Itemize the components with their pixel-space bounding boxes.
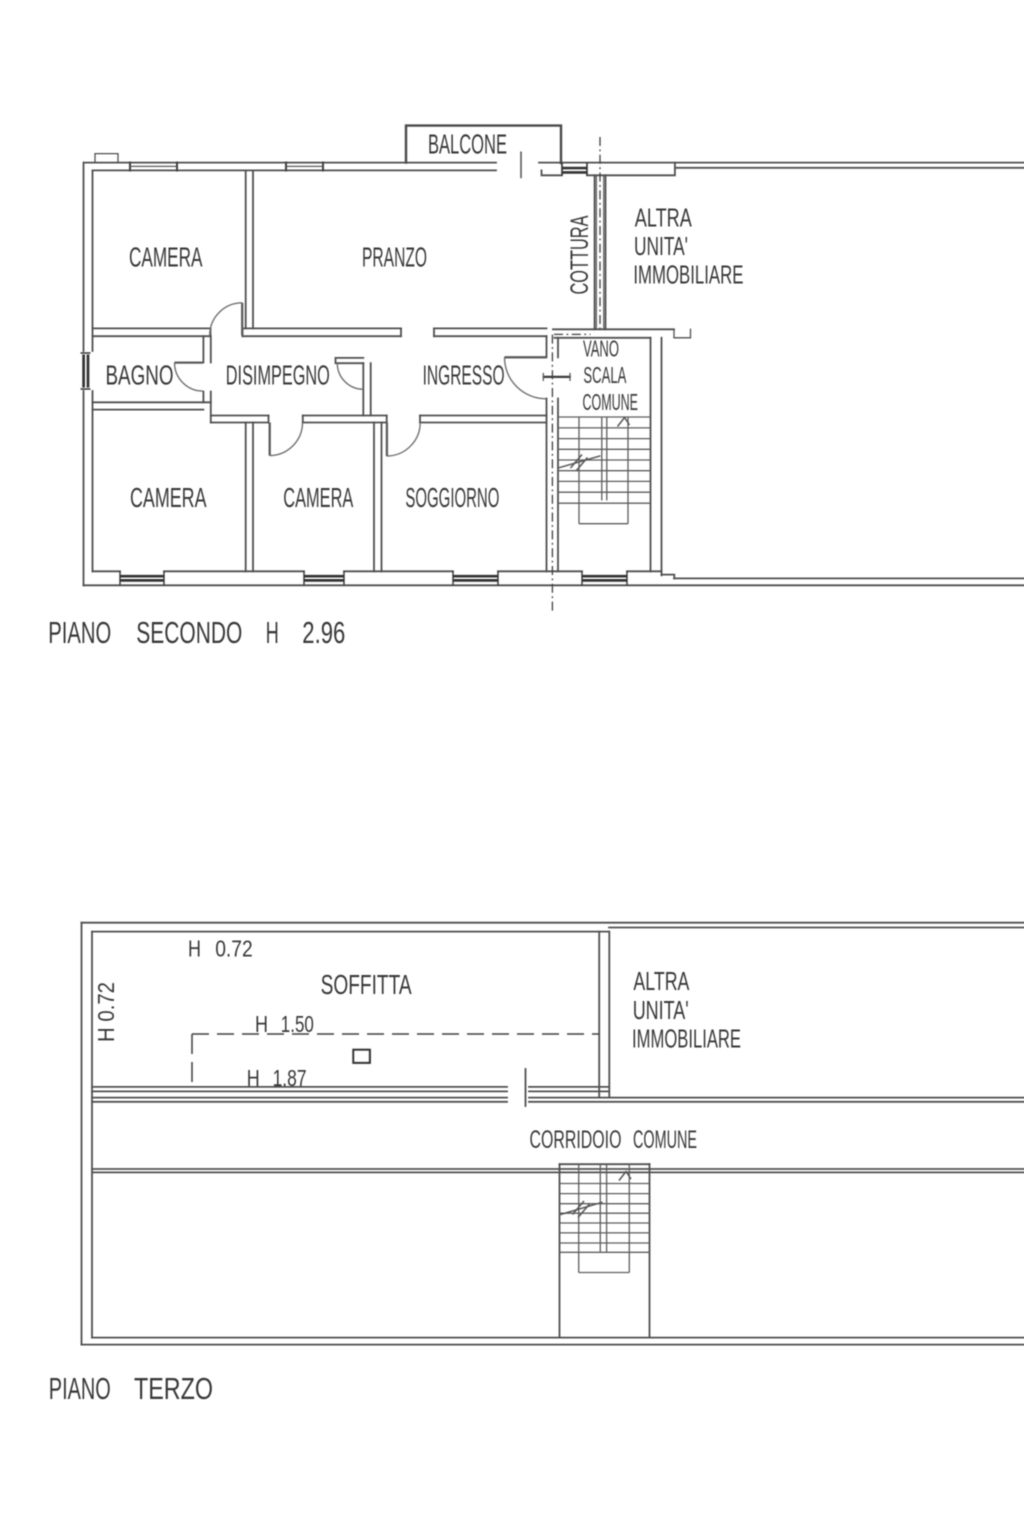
svg-text:1.50: 1.50 bbox=[281, 1011, 314, 1037]
svg-text:PIANO: PIANO bbox=[48, 615, 111, 650]
svg-text:IMMOBILIARE: IMMOBILIARE bbox=[633, 260, 743, 290]
svg-text:BALCONE: BALCONE bbox=[428, 129, 507, 160]
svg-text:CAMERA: CAMERA bbox=[130, 482, 207, 513]
svg-text:INGRESSO: INGRESSO bbox=[423, 360, 505, 391]
svg-text:H: H bbox=[247, 1065, 260, 1091]
svg-text:VANO: VANO bbox=[583, 336, 619, 362]
svg-text:ALTRA: ALTRA bbox=[635, 203, 692, 233]
svg-text:BAGNO: BAGNO bbox=[106, 360, 174, 391]
svg-text:TERZO: TERZO bbox=[134, 1371, 213, 1406]
svg-text:H 0.72: H 0.72 bbox=[93, 982, 119, 1042]
svg-text:COMUNE: COMUNE bbox=[633, 1126, 697, 1154]
svg-text:CORRIDOIO: CORRIDOIO bbox=[530, 1126, 622, 1154]
svg-text:SECONDO: SECONDO bbox=[136, 615, 242, 650]
svg-text:COTTURA: COTTURA bbox=[566, 215, 594, 294]
svg-text:DISIMPEGNO: DISIMPEGNO bbox=[226, 360, 330, 391]
svg-text:UNITA': UNITA' bbox=[634, 231, 688, 261]
svg-text:0.72: 0.72 bbox=[215, 936, 253, 962]
svg-text:H: H bbox=[188, 936, 201, 962]
svg-text:COMUNE: COMUNE bbox=[583, 389, 639, 415]
svg-text:CAMERA: CAMERA bbox=[283, 482, 353, 513]
svg-text:UNITA': UNITA' bbox=[633, 995, 689, 1025]
svg-text:SOFFITTA: SOFFITTA bbox=[321, 969, 412, 1000]
svg-text:SOGGIORNO: SOGGIORNO bbox=[405, 482, 499, 513]
svg-text:CAMERA: CAMERA bbox=[129, 242, 203, 273]
svg-text:H: H bbox=[255, 1011, 268, 1037]
svg-text:PIANO: PIANO bbox=[49, 1371, 111, 1406]
svg-text:PRANZO: PRANZO bbox=[362, 242, 427, 273]
svg-text:H: H bbox=[266, 615, 279, 650]
svg-text:1.87: 1.87 bbox=[273, 1065, 307, 1091]
svg-text:2.96: 2.96 bbox=[302, 615, 345, 650]
svg-text:SCALA: SCALA bbox=[583, 362, 626, 388]
svg-text:IMMOBILIARE: IMMOBILIARE bbox=[632, 1024, 741, 1054]
svg-text:ALTRA: ALTRA bbox=[633, 966, 689, 996]
